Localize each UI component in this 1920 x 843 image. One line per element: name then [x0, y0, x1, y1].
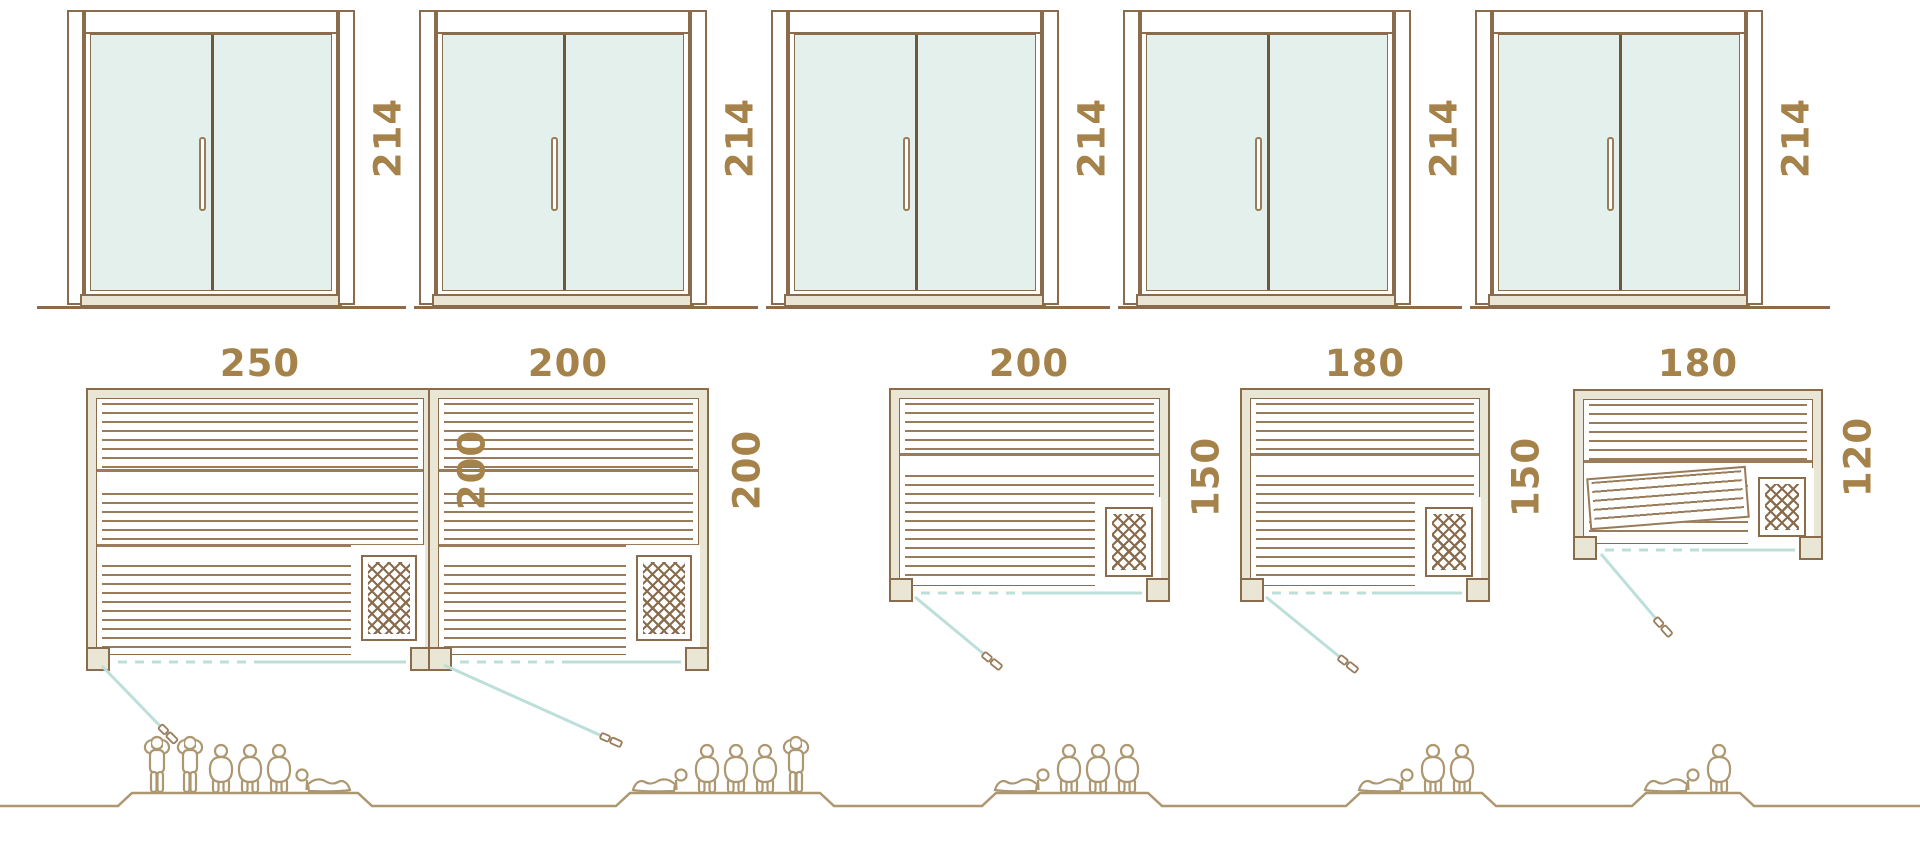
plan-width-label: 180 — [1658, 342, 1738, 385]
person-seated-icon — [268, 745, 290, 793]
people-group — [145, 737, 350, 793]
door-height-label: 214 — [1071, 98, 1114, 178]
heater-bay — [626, 545, 700, 656]
person-seated-icon — [725, 745, 747, 793]
door-stub-left — [1573, 536, 1597, 560]
door-glass — [1146, 34, 1388, 291]
heater-lattice-icon — [1432, 514, 1466, 570]
heater-lattice-icon — [1765, 484, 1799, 530]
door-height-label: 214 — [1775, 98, 1818, 178]
person-seated-icon — [1422, 745, 1444, 793]
heater — [361, 555, 417, 641]
door-handle-icon — [1653, 617, 1672, 637]
person-reclining-icon — [1359, 770, 1413, 792]
door-frame — [788, 10, 1042, 305]
door-frame — [436, 10, 690, 305]
door-handle-icon — [1337, 655, 1358, 673]
door-glass — [794, 34, 1036, 291]
door-stub-right — [1799, 536, 1823, 560]
sauna-size-diagram: 214 214 214 214 214 250 200 200 180 180 — [0, 0, 1920, 843]
door-jamb-left — [419, 10, 436, 305]
door-handle-icon — [158, 724, 178, 744]
door-jamb-left — [771, 10, 788, 305]
person-seated-icon — [1116, 745, 1138, 793]
capacity-figures — [0, 730, 1920, 843]
door-frame — [1140, 10, 1394, 305]
floor-plan — [428, 388, 709, 655]
person-reclining-icon — [297, 770, 351, 792]
heater-lattice-icon — [1112, 514, 1146, 570]
heater — [1105, 507, 1153, 577]
heater-bay — [1748, 468, 1814, 545]
ground-line — [0, 793, 1920, 806]
door-stub-right — [1466, 578, 1490, 602]
door-handle — [1607, 137, 1614, 211]
plan-depth-label: 120 — [1837, 417, 1880, 497]
person-seated-icon — [239, 745, 261, 793]
door-stub-right — [685, 647, 709, 671]
door-jamb-right — [338, 10, 355, 305]
person-standing-icon — [145, 737, 169, 792]
person-standing-icon — [178, 737, 202, 792]
person-seated-icon — [1087, 745, 1109, 793]
bench-divider — [900, 453, 1159, 471]
people-group — [1645, 745, 1730, 793]
door-panel-divider — [1619, 35, 1622, 290]
door-panel-divider — [915, 35, 918, 290]
heater — [1425, 507, 1473, 577]
door-header — [790, 12, 1040, 34]
floor-line — [1470, 306, 1830, 309]
door-elevation — [419, 10, 707, 305]
door-panel-divider — [1267, 35, 1270, 290]
door-jamb-right — [690, 10, 707, 305]
door-panel-divider — [211, 35, 214, 290]
door-jamb-right — [1746, 10, 1763, 305]
person-seated-icon — [1058, 745, 1080, 793]
person-seated-icon — [1451, 745, 1473, 793]
door-stub-right — [1146, 578, 1170, 602]
plan-interior — [96, 398, 424, 655]
door-jamb-left — [1475, 10, 1492, 305]
door-swing-arc-icon — [1601, 554, 1657, 620]
door-jamb-right — [1394, 10, 1411, 305]
door-header — [86, 12, 336, 34]
bench-divider — [97, 469, 423, 487]
floor-plan — [1240, 388, 1490, 586]
plan-interior — [899, 398, 1160, 586]
door-elevation — [67, 10, 355, 305]
bench-slats — [1592, 470, 1745, 526]
floor-plan — [889, 388, 1170, 586]
door-glass — [90, 34, 332, 291]
floor-line — [1118, 306, 1462, 309]
plan-width-label: 250 — [220, 342, 300, 385]
door-height-label: 214 — [367, 98, 410, 178]
heater-bay — [1415, 497, 1481, 587]
door-glass — [442, 34, 684, 291]
door-panel-divider — [563, 35, 566, 290]
door-header — [438, 12, 688, 34]
person-seated-icon — [1708, 745, 1730, 793]
door-handle-icon — [600, 733, 623, 747]
person-standing-icon — [784, 737, 808, 792]
door-jamb-left — [1123, 10, 1140, 305]
plan-depth-label: 200 — [451, 430, 494, 510]
door-elevation — [1123, 10, 1411, 305]
plan-width-label: 180 — [1325, 342, 1405, 385]
door-jamb-left — [67, 10, 84, 305]
door-glass — [1498, 34, 1740, 291]
person-seated-icon — [754, 745, 776, 793]
door-stub-left — [86, 647, 110, 671]
heater-bay — [351, 545, 425, 656]
plan-width-label: 200 — [528, 342, 608, 385]
floor-plan — [86, 388, 434, 655]
door-handle-icon — [982, 652, 1003, 671]
door-header — [1142, 12, 1392, 34]
door-handle — [551, 137, 558, 211]
floor-line — [766, 306, 1110, 309]
person-reclining-icon — [995, 770, 1049, 792]
door-stub-left — [1240, 578, 1264, 602]
floor-line — [37, 306, 406, 309]
floor-line — [414, 306, 758, 309]
door-header — [1494, 12, 1744, 34]
door-handle — [1255, 137, 1262, 211]
plan-width-label: 200 — [989, 342, 1069, 385]
heater-bay — [1095, 497, 1161, 587]
plan-interior — [1583, 399, 1813, 544]
door-swing-arc-icon — [1266, 597, 1341, 658]
people-group — [1359, 745, 1473, 793]
plan-interior — [1250, 398, 1480, 586]
heater-lattice-icon — [643, 562, 685, 634]
person-reclining-icon — [633, 770, 687, 792]
person-reclining-icon — [1645, 770, 1699, 792]
door-handle — [199, 137, 206, 211]
heater — [636, 555, 692, 641]
door-handle — [903, 137, 910, 211]
plan-depth-label: 150 — [1185, 437, 1228, 517]
person-seated-icon — [696, 745, 718, 793]
door-elevation — [1475, 10, 1763, 305]
bench-divider — [1251, 453, 1479, 471]
door-elevation — [771, 10, 1059, 305]
door-swing-arc-icon — [915, 597, 985, 655]
door-frame — [84, 10, 338, 305]
door-height-label: 214 — [1423, 98, 1466, 178]
door-swing-arc-icon — [444, 665, 602, 736]
plan-depth-label: 150 — [1505, 437, 1548, 517]
person-seated-icon — [210, 745, 232, 793]
door-stub-left — [428, 647, 452, 671]
door-swing-arc-icon — [102, 666, 162, 728]
people-group — [633, 737, 808, 793]
door-frame — [1492, 10, 1746, 305]
door-height-label: 214 — [719, 98, 762, 178]
heater-lattice-icon — [368, 562, 410, 634]
door-stub-left — [889, 578, 913, 602]
door-jamb-right — [1042, 10, 1059, 305]
plan-depth-label: 200 — [726, 430, 769, 510]
people-group — [995, 745, 1138, 793]
heater — [1758, 477, 1806, 537]
floor-plan — [1573, 389, 1823, 544]
